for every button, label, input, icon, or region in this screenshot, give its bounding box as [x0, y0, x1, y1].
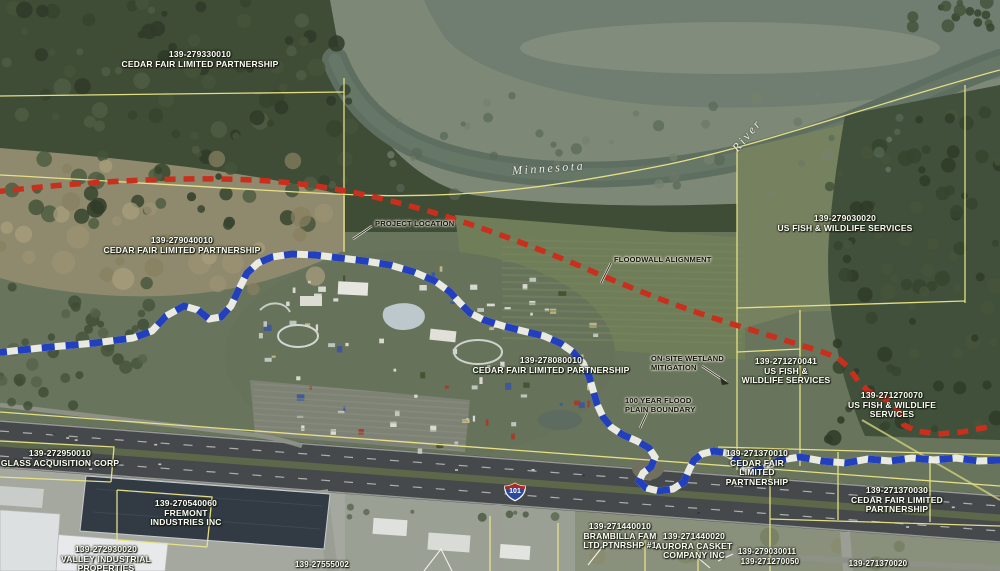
forest-right: [828, 85, 1000, 440]
highway-101-number: 101: [504, 488, 526, 495]
highway-101-shield: 101: [504, 482, 526, 502]
sandbar: [520, 22, 940, 74]
aerial-parcel-map: 139-279330010CEDAR FAIR LIMITED PARTNERS…: [0, 0, 1000, 571]
aerial-basemap: [0, 0, 1000, 571]
